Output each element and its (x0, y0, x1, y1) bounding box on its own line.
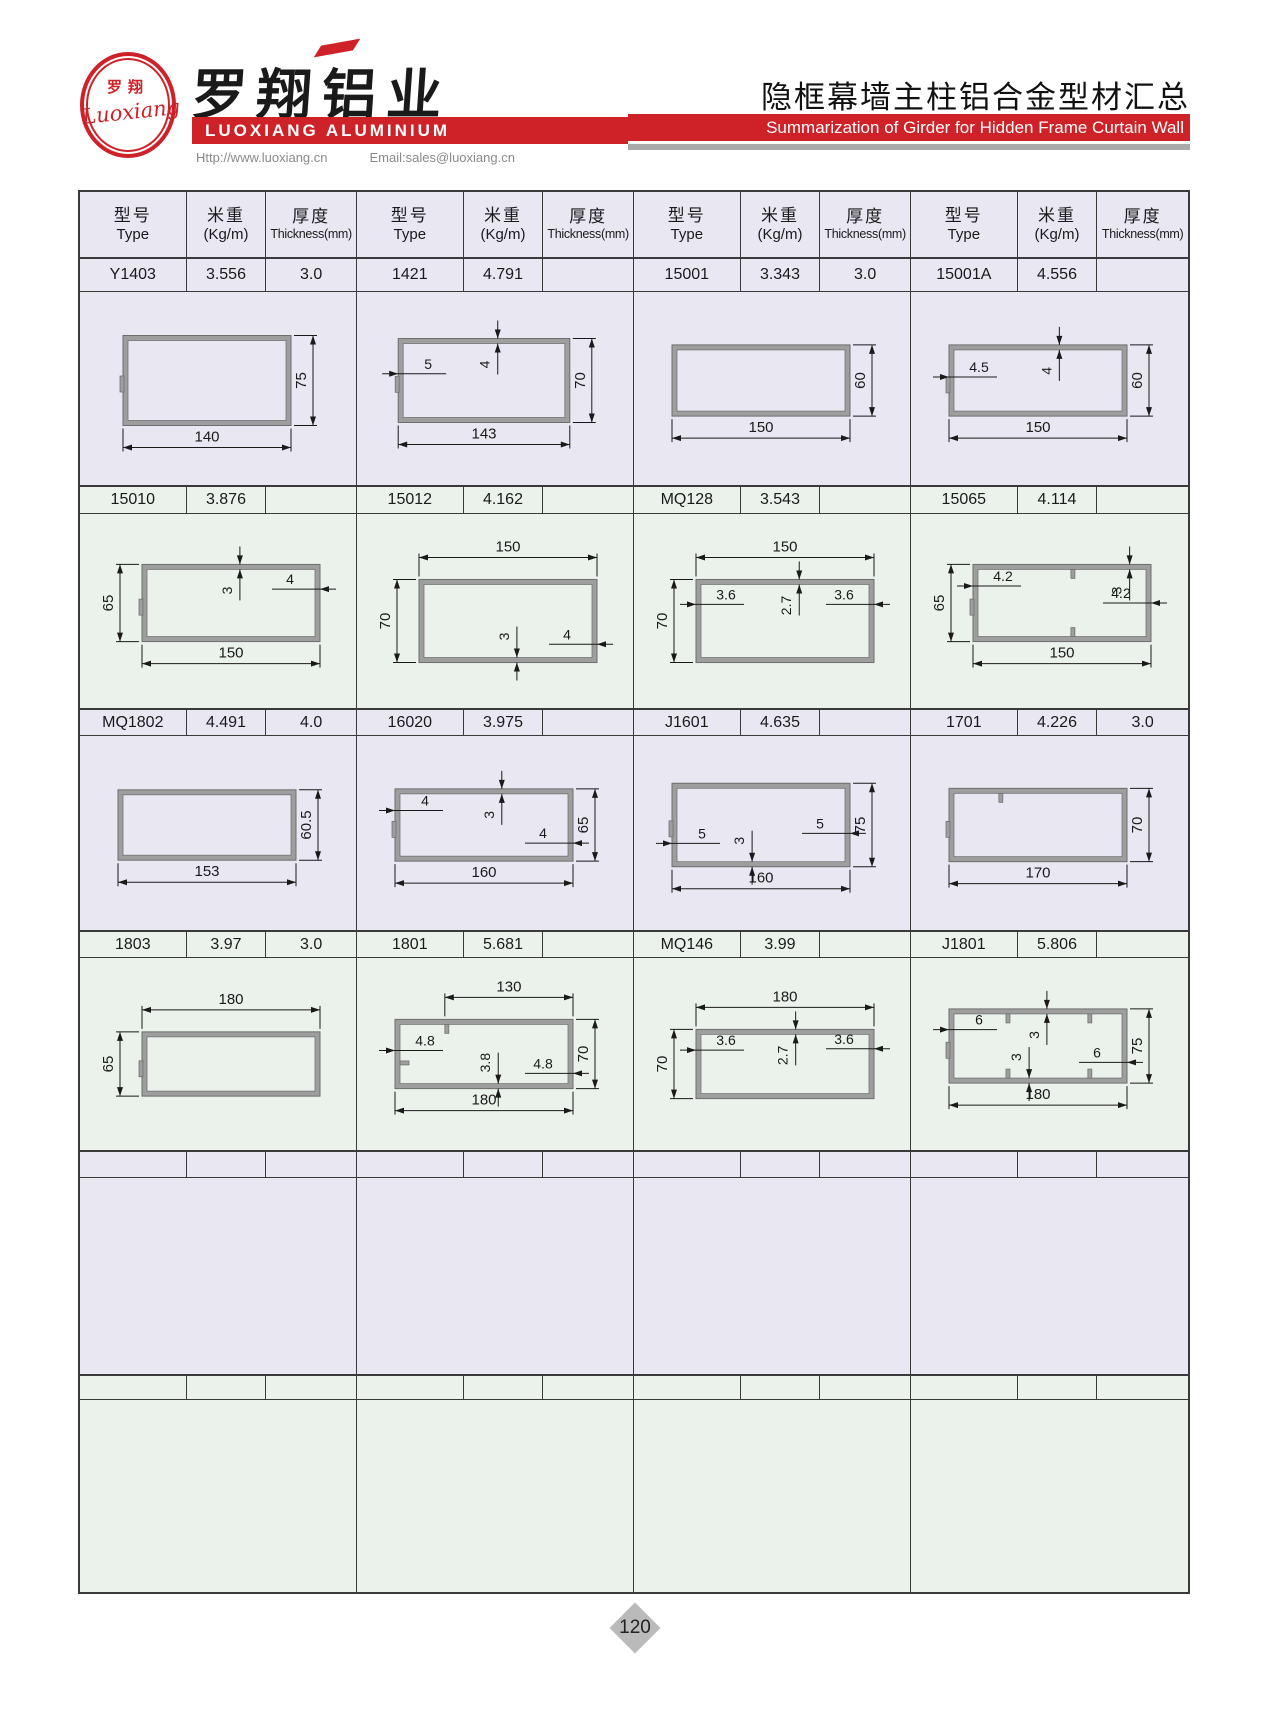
diagram-cell (80, 1178, 357, 1374)
type-cell (80, 1152, 187, 1177)
thickness-cell (266, 1152, 357, 1177)
type-cell: 1801 (357, 932, 464, 957)
page-number-badge: 120 (610, 1603, 661, 1654)
type-cell (634, 1376, 741, 1399)
header-cell-kgm: 米重(Kg/m) (464, 192, 544, 257)
svg-text:70: 70 (654, 1056, 671, 1073)
svg-text:65: 65 (931, 595, 948, 612)
diagram-cell: 180703.62.73.6 (634, 958, 911, 1150)
header-label-en: Type (671, 226, 704, 245)
type-cell: 16020 (357, 710, 464, 735)
thickness-cell (820, 487, 911, 513)
spec-row (80, 1150, 1188, 1178)
svg-text:60: 60 (852, 372, 869, 389)
svg-text:140: 140 (194, 429, 219, 446)
svg-text:5: 5 (816, 815, 824, 831)
logo-zh-text: 罗翔 (80, 76, 176, 97)
svg-text:3: 3 (731, 837, 747, 845)
page-title-en-bar: Summarization of Girder for Hidden Frame… (628, 114, 1190, 141)
weight-cell: 4.114 (1018, 487, 1098, 513)
header-cell-type: 型号Type (357, 192, 464, 257)
svg-text:153: 153 (194, 863, 219, 880)
diagram-cell (357, 1400, 634, 1592)
thickness-cell (266, 487, 357, 513)
type-cell: MQ128 (634, 487, 741, 513)
header-label-en: (Kg/m) (1034, 226, 1079, 245)
header-cell-kgm: 米重(Kg/m) (1018, 192, 1098, 257)
thickness-cell: 3.0 (1097, 710, 1188, 735)
profile-drawing: 180703.62.73.6 (634, 958, 912, 1150)
svg-text:3.6: 3.6 (834, 1031, 854, 1047)
svg-text:4.8: 4.8 (415, 1033, 435, 1049)
svg-text:65: 65 (100, 595, 117, 612)
svg-text:70: 70 (654, 613, 671, 630)
svg-text:3.6: 3.6 (834, 586, 854, 602)
weight-cell: 3.97 (187, 932, 267, 957)
type-cell: 1803 (80, 932, 187, 957)
svg-text:4: 4 (1038, 367, 1054, 375)
svg-text:6: 6 (1093, 1044, 1101, 1060)
diagram-cell (911, 1400, 1188, 1592)
svg-text:3: 3 (1026, 1031, 1042, 1039)
header-label-zh: 型号 (391, 205, 429, 226)
weight-cell: 4.491 (187, 710, 267, 735)
email-address: Email:sales@luoxiang.cn (370, 150, 515, 165)
header-label-zh: 米重 (1038, 205, 1076, 226)
header-cell-thicknessmm: 厚度Thickness(mm) (820, 192, 911, 257)
diagram-cell (634, 1178, 911, 1374)
header-label-en: (Kg/m) (203, 226, 248, 245)
svg-text:150: 150 (772, 538, 797, 555)
diagram-cell: 17070 (911, 736, 1188, 930)
type-cell (357, 1152, 464, 1177)
diagram-cell: 15360.5 (80, 736, 357, 930)
table-header-row: 型号Type米重(Kg/m)厚度Thickness(mm)型号Type米重(Kg… (80, 192, 1188, 257)
thickness-cell (1097, 1152, 1188, 1177)
weight-cell: 4.556 (1018, 259, 1098, 291)
weight-cell: 4.635 (741, 710, 821, 735)
header-label-en: Thickness(mm) (547, 227, 629, 243)
svg-text:75: 75 (1129, 1038, 1146, 1055)
type-cell: MQ1802 (80, 710, 187, 735)
header-label-en: Thickness(mm) (1102, 227, 1184, 243)
svg-text:143: 143 (471, 426, 496, 443)
svg-text:3.8: 3.8 (477, 1053, 493, 1073)
svg-text:170: 170 (1025, 865, 1050, 882)
type-cell (911, 1376, 1018, 1399)
thickness-cell (543, 932, 634, 957)
profile-drawing: 180130704.83.84.8 (357, 958, 635, 1150)
weight-cell: 4.791 (464, 259, 544, 291)
weight-cell (741, 1376, 821, 1399)
weight-cell: 3.556 (187, 259, 267, 291)
header-cell-type: 型号Type (80, 192, 187, 257)
svg-text:150: 150 (748, 419, 773, 436)
svg-text:2.7: 2.7 (778, 596, 794, 616)
type-cell (357, 1376, 464, 1399)
company-logo: 罗翔 Luoxiang (80, 52, 176, 158)
drawing-row (80, 1400, 1188, 1592)
profile-drawing: 150703.62.73.6 (634, 514, 912, 708)
svg-text:2.7: 2.7 (775, 1045, 791, 1065)
profile-drawing: 16065434 (357, 736, 635, 930)
thickness-cell: 3.0 (266, 259, 357, 291)
spec-row: MQ18024.4914.0160203.975J16014.63517014.… (80, 708, 1188, 736)
diagram-cell: 180753636 (911, 958, 1188, 1150)
thickness-cell (1097, 932, 1188, 957)
svg-text:70: 70 (572, 372, 589, 389)
spec-row: Y14033.5563.014214.791150013.3433.015001… (80, 257, 1188, 292)
type-cell (634, 1152, 741, 1177)
svg-text:70: 70 (1129, 817, 1146, 834)
type-cell: 15001 (634, 259, 741, 291)
svg-text:4: 4 (539, 825, 547, 841)
profile-drawing: 1506534 (80, 514, 358, 708)
contact-line: Http://www.luoxiang.cnEmail:sales@luoxia… (196, 150, 557, 165)
svg-text:4.8: 4.8 (533, 1055, 553, 1071)
svg-text:4: 4 (563, 626, 571, 642)
weight-cell (464, 1376, 544, 1399)
header-label-zh: 厚度 (569, 206, 607, 227)
diagram-cell: 150703.62.73.6 (634, 514, 911, 708)
weight-cell (1018, 1152, 1098, 1177)
header-label-zh: 厚度 (1124, 206, 1162, 227)
header-label-en: Type (394, 226, 427, 245)
svg-text:4.5: 4.5 (969, 359, 989, 375)
diagram-cell: 16075535 (634, 736, 911, 930)
weight-cell (187, 1376, 267, 1399)
weight-cell: 3.876 (187, 487, 267, 513)
spec-row (80, 1374, 1188, 1400)
profile-drawing: 150654.234.2 (911, 514, 1189, 708)
diagram-cell (634, 1400, 911, 1592)
svg-text:150: 150 (495, 538, 520, 555)
header-label-en: (Kg/m) (757, 226, 802, 245)
type-cell: 1701 (911, 710, 1018, 735)
type-cell: 15065 (911, 487, 1018, 513)
diagram-cell: 15060 (634, 292, 911, 485)
svg-text:180: 180 (218, 991, 243, 1008)
weight-cell: 4.162 (464, 487, 544, 513)
website-url: Http://www.luoxiang.cn (196, 150, 328, 165)
diagram-cell: 1506534 (80, 514, 357, 708)
thickness-cell (820, 932, 911, 957)
drawing-row (80, 1178, 1188, 1374)
page-number: 120 (617, 1610, 653, 1646)
svg-text:3.6: 3.6 (716, 586, 736, 602)
type-cell: J1801 (911, 932, 1018, 957)
svg-text:5: 5 (424, 356, 432, 372)
weight-cell: 5.806 (1018, 932, 1098, 957)
type-cell: 15010 (80, 487, 187, 513)
thickness-cell (820, 710, 911, 735)
profile-drawing: 17070 (911, 736, 1189, 930)
thickness-cell (543, 710, 634, 735)
header-cell-type: 型号Type (634, 192, 741, 257)
diagram-cell (357, 1178, 634, 1374)
diagram-cell: 180130704.83.84.8 (357, 958, 634, 1150)
diagram-cell: 16065434 (357, 736, 634, 930)
svg-text:180: 180 (772, 988, 797, 1005)
diagram-cell: 150654.234.2 (911, 514, 1188, 708)
profile-drawing: 15360.5 (80, 736, 358, 930)
diagram-cell: 18065 (80, 958, 357, 1150)
type-cell: 1421 (357, 259, 464, 291)
svg-text:75: 75 (852, 817, 869, 834)
svg-text:65: 65 (575, 817, 592, 834)
header-cell-kgm: 米重(Kg/m) (187, 192, 267, 257)
header-label-en: (Kg/m) (480, 226, 525, 245)
profile-summary-table: 型号Type米重(Kg/m)厚度Thickness(mm)型号Type米重(Kg… (78, 190, 1190, 1594)
spec-row: 150103.876150124.162MQ1283.543150654.114 (80, 485, 1188, 514)
weight-cell: 3.99 (741, 932, 821, 957)
diagram-cell: 150604.54 (911, 292, 1188, 485)
thickness-cell: 4.0 (266, 710, 357, 735)
profile-drawing: 15060 (634, 292, 912, 485)
type-cell: Y1403 (80, 259, 187, 291)
header-cell-thicknessmm: 厚度Thickness(mm) (1097, 192, 1188, 257)
header-label-en: Thickness(mm) (824, 227, 906, 243)
header-cell-kgm: 米重(Kg/m) (741, 192, 821, 257)
svg-text:5: 5 (698, 825, 706, 841)
thickness-cell (820, 1152, 911, 1177)
header-cell-thicknessmm: 厚度Thickness(mm) (543, 192, 634, 257)
drawing-row: 15360.5160654341607553517070 (80, 736, 1188, 930)
catalog-page: 罗翔 Luoxiang 罗翔铝业 LUOXIANG ALUMINIUM Http… (0, 0, 1277, 1721)
svg-text:60.5: 60.5 (298, 810, 315, 839)
svg-text:70: 70 (377, 613, 394, 630)
weight-cell (1018, 1376, 1098, 1399)
thickness-cell: 3.0 (820, 259, 911, 291)
svg-text:6: 6 (975, 1012, 983, 1028)
header-label-zh: 米重 (761, 205, 799, 226)
svg-text:65: 65 (100, 1056, 117, 1073)
header-label-zh: 厚度 (292, 206, 330, 227)
svg-text:150: 150 (1025, 419, 1050, 436)
svg-text:75: 75 (293, 372, 310, 389)
diagram-cell: 1507034 (357, 514, 634, 708)
thickness-cell (543, 1152, 634, 1177)
type-cell: MQ146 (634, 932, 741, 957)
profile-drawing: 150604.54 (911, 292, 1189, 485)
weight-cell: 5.681 (464, 932, 544, 957)
thickness-cell (1097, 487, 1188, 513)
svg-text:4.2: 4.2 (1111, 585, 1131, 601)
svg-text:3: 3 (481, 811, 497, 819)
thickness-cell: 3.0 (266, 932, 357, 957)
weight-cell (464, 1152, 544, 1177)
svg-text:150: 150 (218, 645, 243, 662)
drawing-row: 15065341507034150703.62.73.6150654.234.2 (80, 514, 1188, 708)
weight-cell (187, 1152, 267, 1177)
weight-cell: 3.975 (464, 710, 544, 735)
header-label-zh: 厚度 (846, 206, 884, 227)
profile-drawing: 1507034 (357, 514, 635, 708)
header-label-en: Thickness(mm) (270, 227, 352, 243)
diagram-cell (911, 1178, 1188, 1374)
profile-drawing: 16075535 (634, 736, 912, 930)
header-label-zh: 米重 (207, 205, 245, 226)
thickness-cell (266, 1376, 357, 1399)
type-cell: 15012 (357, 487, 464, 513)
profile-drawing: 18065 (80, 958, 358, 1150)
header-divider (628, 144, 1190, 150)
header-label-zh: 型号 (945, 205, 983, 226)
weight-cell: 4.226 (1018, 710, 1098, 735)
profile-drawing: 1437054 (357, 292, 635, 485)
company-name-en-bar: LUOXIANG ALUMINIUM (192, 117, 628, 144)
header-label-zh: 型号 (668, 205, 706, 226)
header-label-en: Type (948, 226, 981, 245)
svg-text:3: 3 (1008, 1053, 1024, 1061)
weight-cell: 3.343 (741, 259, 821, 291)
svg-text:3.6: 3.6 (716, 1032, 736, 1048)
profile-drawing: 180753636 (911, 958, 1189, 1150)
type-cell (80, 1376, 187, 1399)
header-cell-type: 型号Type (911, 192, 1018, 257)
thickness-cell (543, 487, 634, 513)
thickness-cell (1097, 259, 1188, 291)
header-label-en: Type (117, 226, 150, 245)
thickness-cell (543, 1376, 634, 1399)
svg-text:160: 160 (471, 864, 496, 881)
thickness-cell (1097, 1376, 1188, 1399)
svg-text:4.2: 4.2 (993, 568, 1013, 584)
svg-text:130: 130 (496, 978, 521, 995)
thickness-cell (820, 1376, 911, 1399)
svg-text:4: 4 (286, 571, 294, 587)
svg-text:70: 70 (575, 1046, 592, 1063)
svg-text:60: 60 (1129, 372, 1146, 389)
header-label-zh: 型号 (114, 205, 152, 226)
thickness-cell (543, 259, 634, 291)
type-cell (911, 1152, 1018, 1177)
spec-row: 18033.973.018015.681MQ1463.99J18015.806 (80, 930, 1188, 958)
svg-text:150: 150 (1049, 645, 1074, 662)
type-cell: J1601 (634, 710, 741, 735)
svg-text:3: 3 (496, 632, 512, 640)
weight-cell (741, 1152, 821, 1177)
diagram-cell: 14075 (80, 292, 357, 485)
weight-cell: 3.543 (741, 487, 821, 513)
header-label-zh: 米重 (484, 205, 522, 226)
drawing-row: 14075143705415060150604.54 (80, 292, 1188, 485)
svg-text:4: 4 (477, 360, 493, 368)
profile-drawing: 14075 (80, 292, 358, 485)
page-title: 隐框幕墙主柱铝合金型材汇总 (761, 72, 1190, 117)
header-cell-thicknessmm: 厚度Thickness(mm) (266, 192, 357, 257)
svg-text:180: 180 (471, 1092, 496, 1109)
type-cell: 15001A (911, 259, 1018, 291)
svg-text:3: 3 (219, 586, 235, 594)
diagram-cell (80, 1400, 357, 1592)
svg-text:4: 4 (421, 793, 429, 809)
drawing-row: 18065180130704.83.84.8180703.62.73.61807… (80, 958, 1188, 1150)
diagram-cell: 1437054 (357, 292, 634, 485)
